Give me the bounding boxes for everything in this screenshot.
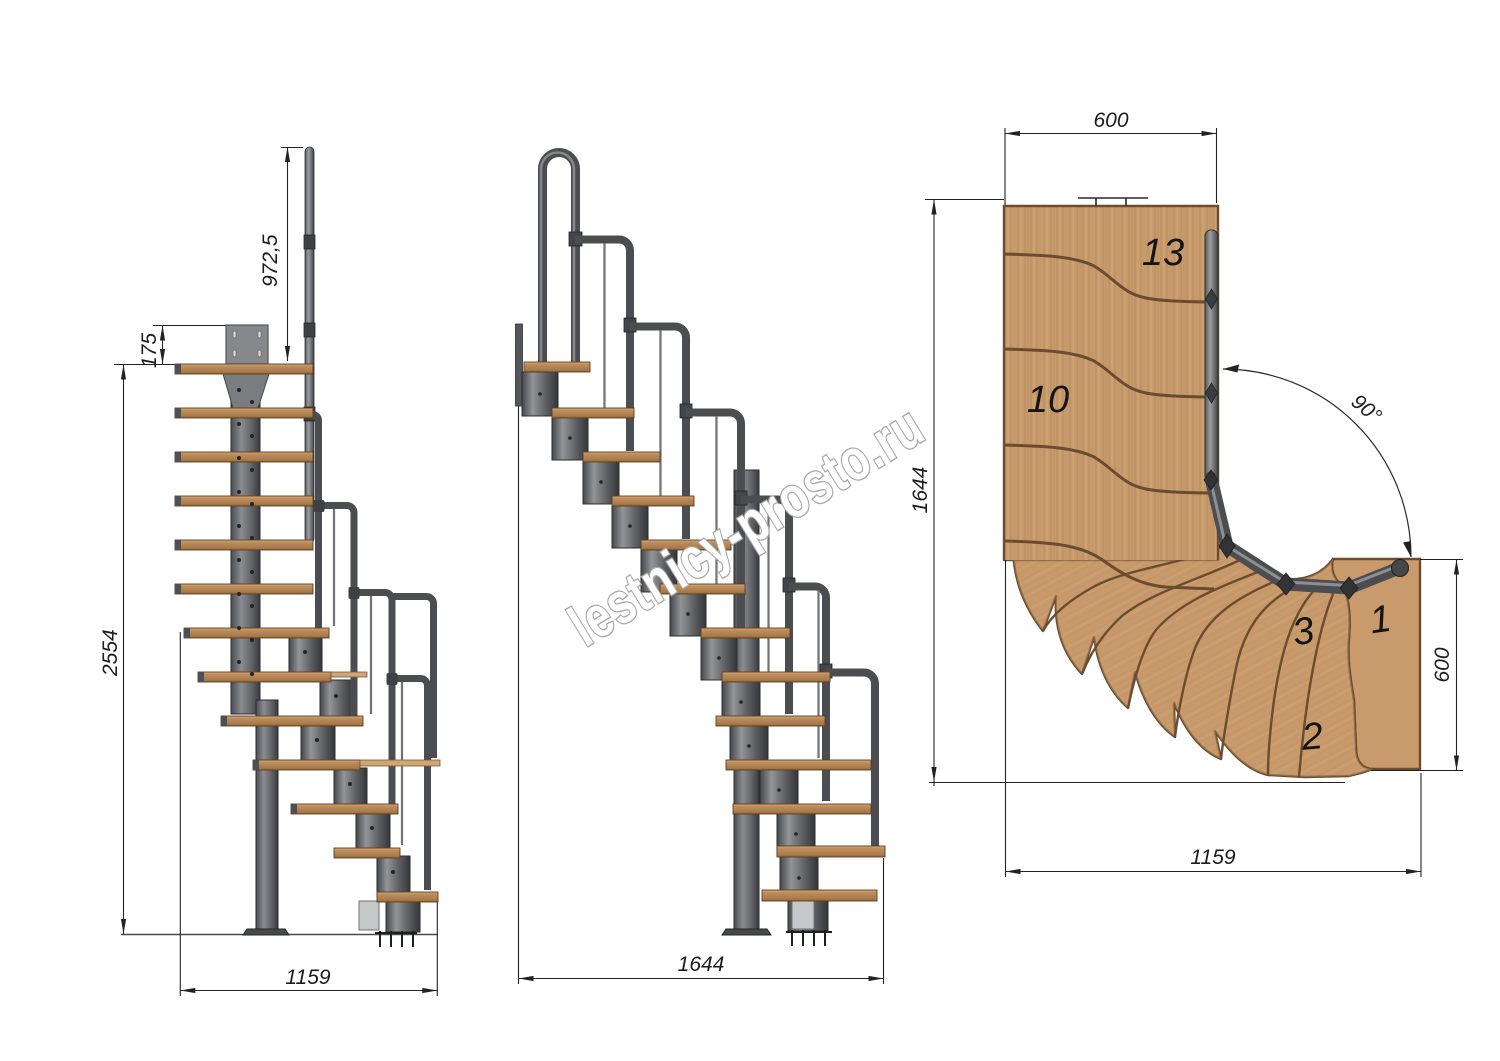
- svg-text:1644: 1644: [678, 953, 725, 976]
- svg-text:972,5: 972,5: [259, 234, 282, 287]
- svg-text:1159: 1159: [1190, 846, 1235, 869]
- svg-text:90°: 90°: [1347, 390, 1386, 428]
- svg-text:13: 13: [1142, 232, 1184, 274]
- svg-text:175: 175: [138, 333, 161, 368]
- svg-text:1159: 1159: [285, 966, 330, 989]
- svg-text:600: 600: [1431, 647, 1454, 682]
- svg-text:600: 600: [1093, 109, 1128, 132]
- svg-text:10: 10: [1027, 379, 1069, 421]
- svg-text:1644: 1644: [909, 467, 932, 514]
- svg-text:2554: 2554: [99, 629, 122, 677]
- svg-text:2: 2: [1299, 715, 1325, 759]
